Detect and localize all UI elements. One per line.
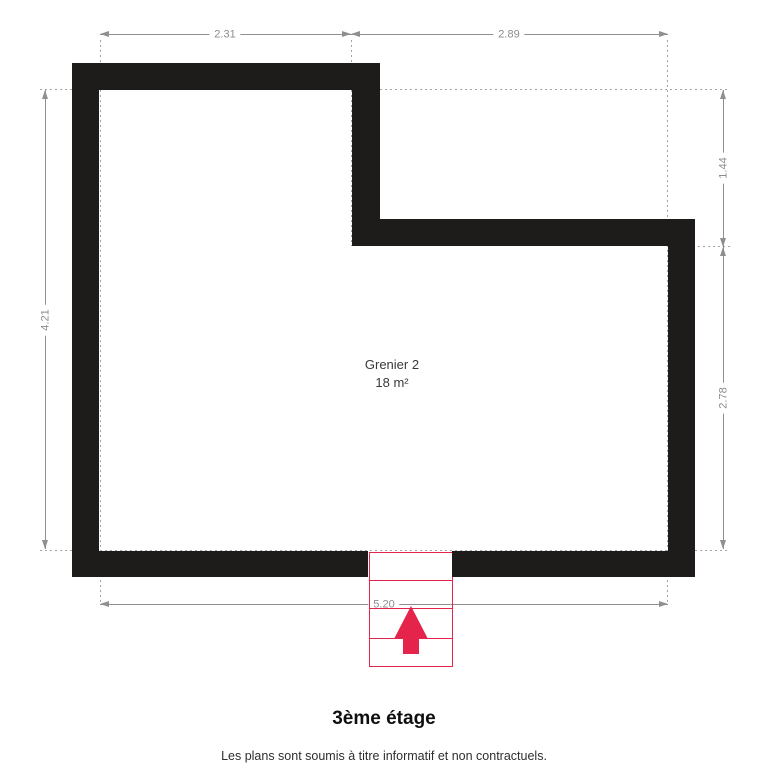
floor-title: 3ème étage [0, 708, 768, 730]
extension-line-left [100, 40, 101, 605]
up-arrow-icon [390, 604, 432, 656]
arrowhead [659, 31, 668, 37]
wall-bottom-left [72, 551, 368, 577]
dim-label-right-upper: 1.44 [718, 152, 731, 183]
arrowhead [342, 31, 351, 37]
arrowhead [351, 31, 360, 37]
wall-bottom-right [452, 551, 695, 577]
floor-plan: 2.31 2.89 4.21 1.44 2.78 5.20 Grenier 2 … [0, 0, 768, 768]
wall-right [668, 219, 695, 577]
disclaimer-text: Les plans sont soumis à titre informatif… [0, 749, 768, 763]
arrowhead [720, 238, 726, 247]
arrowhead [100, 601, 109, 607]
arrowhead [42, 90, 48, 99]
room-label: Grenier 2 18 m² [292, 356, 492, 392]
arrowhead [659, 601, 668, 607]
arrowhead [42, 540, 48, 549]
dim-label-top-right: 2.89 [493, 29, 524, 42]
arrowhead [720, 90, 726, 99]
room-name: Grenier 2 [292, 356, 492, 374]
dim-label-left: 4.21 [40, 304, 53, 335]
arrowhead [100, 31, 109, 37]
arrowhead [720, 540, 726, 549]
wall-top [72, 63, 380, 90]
dim-label-right-lower: 2.78 [718, 382, 731, 413]
arrowhead [720, 247, 726, 256]
stair-tread [370, 580, 452, 581]
dim-label-top-left: 2.31 [209, 29, 240, 42]
wall-middle-horizontal [352, 219, 695, 246]
room-area: 18 m² [292, 374, 492, 392]
wall-left [72, 63, 99, 577]
